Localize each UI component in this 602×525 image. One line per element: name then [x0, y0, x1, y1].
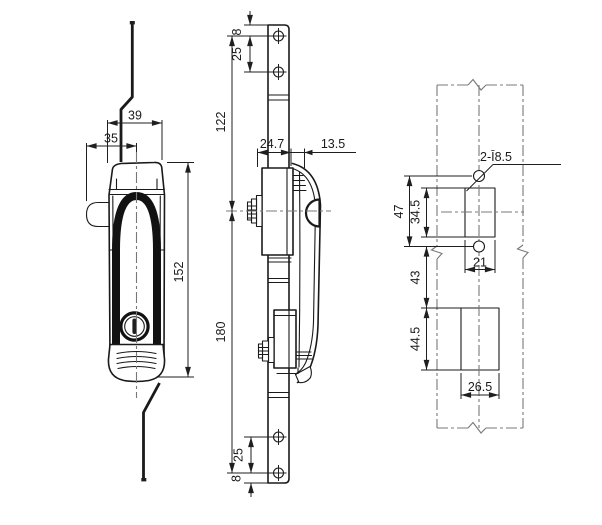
dim-cutout-hole-to-lower: 43	[409, 271, 423, 285]
dim-side-edge-to-hole-bottom: 8	[230, 475, 244, 482]
arrow-135	[305, 150, 313, 156]
break-bottom	[468, 423, 486, 434]
dim-front-lug-to-center: 35	[104, 132, 118, 146]
dim-cutout-hole-pitch: 47	[392, 205, 406, 219]
rod-top-tip	[130, 21, 135, 24]
dim-front-top-width: 39	[128, 109, 142, 123]
dim-side-center-to-hole-bottom: 180	[214, 322, 228, 343]
dim-side-edge-to-hole-top: 8	[230, 28, 244, 35]
break-right	[518, 245, 529, 258]
engineering-drawing: 39 35 152	[0, 0, 602, 525]
dim-cutout-mounting-holes: 2-Ī8.5	[480, 150, 512, 164]
dim-side-body-depth: 24.7	[260, 137, 284, 151]
dim-cutout-upper-width: 21	[473, 256, 487, 270]
rod-top	[121, 24, 132, 163]
cylinder-housing	[274, 310, 296, 368]
dim-cutout-lower-width: 26.5	[468, 380, 492, 394]
cutout-hole-bottom	[474, 241, 485, 252]
rod-bottom-tip	[141, 478, 146, 481]
dim-side-hole-to-center: 122	[214, 112, 228, 133]
cutout-view: 2-Ī8.5 47 34.5 43 44.5 21 26.5	[392, 80, 561, 434]
front-view: 39 35 152	[87, 21, 195, 481]
leader-diagonal	[467, 165, 494, 192]
housing-step	[269, 338, 275, 363]
drawing-canvas: 39 35 152	[0, 0, 602, 525]
rod-bottom	[144, 383, 160, 479]
pivot-lug	[87, 203, 113, 227]
dim-front-handle-height: 152	[172, 262, 186, 283]
side-view: 8 25 122 180 24.7 13.5 25 8	[214, 11, 356, 497]
break-left	[432, 246, 443, 259]
dim-cutout-lower-height: 44.5	[409, 327, 423, 351]
cutout-hole-top	[474, 171, 485, 182]
dim-cutout-upper-height: 34.5	[409, 200, 423, 224]
dim-side-handle-depth: 13.5	[321, 137, 345, 151]
lower-cutout	[461, 308, 499, 370]
dim-side-hole-pitch-bottom: 25	[232, 448, 246, 462]
break-top	[468, 80, 486, 91]
